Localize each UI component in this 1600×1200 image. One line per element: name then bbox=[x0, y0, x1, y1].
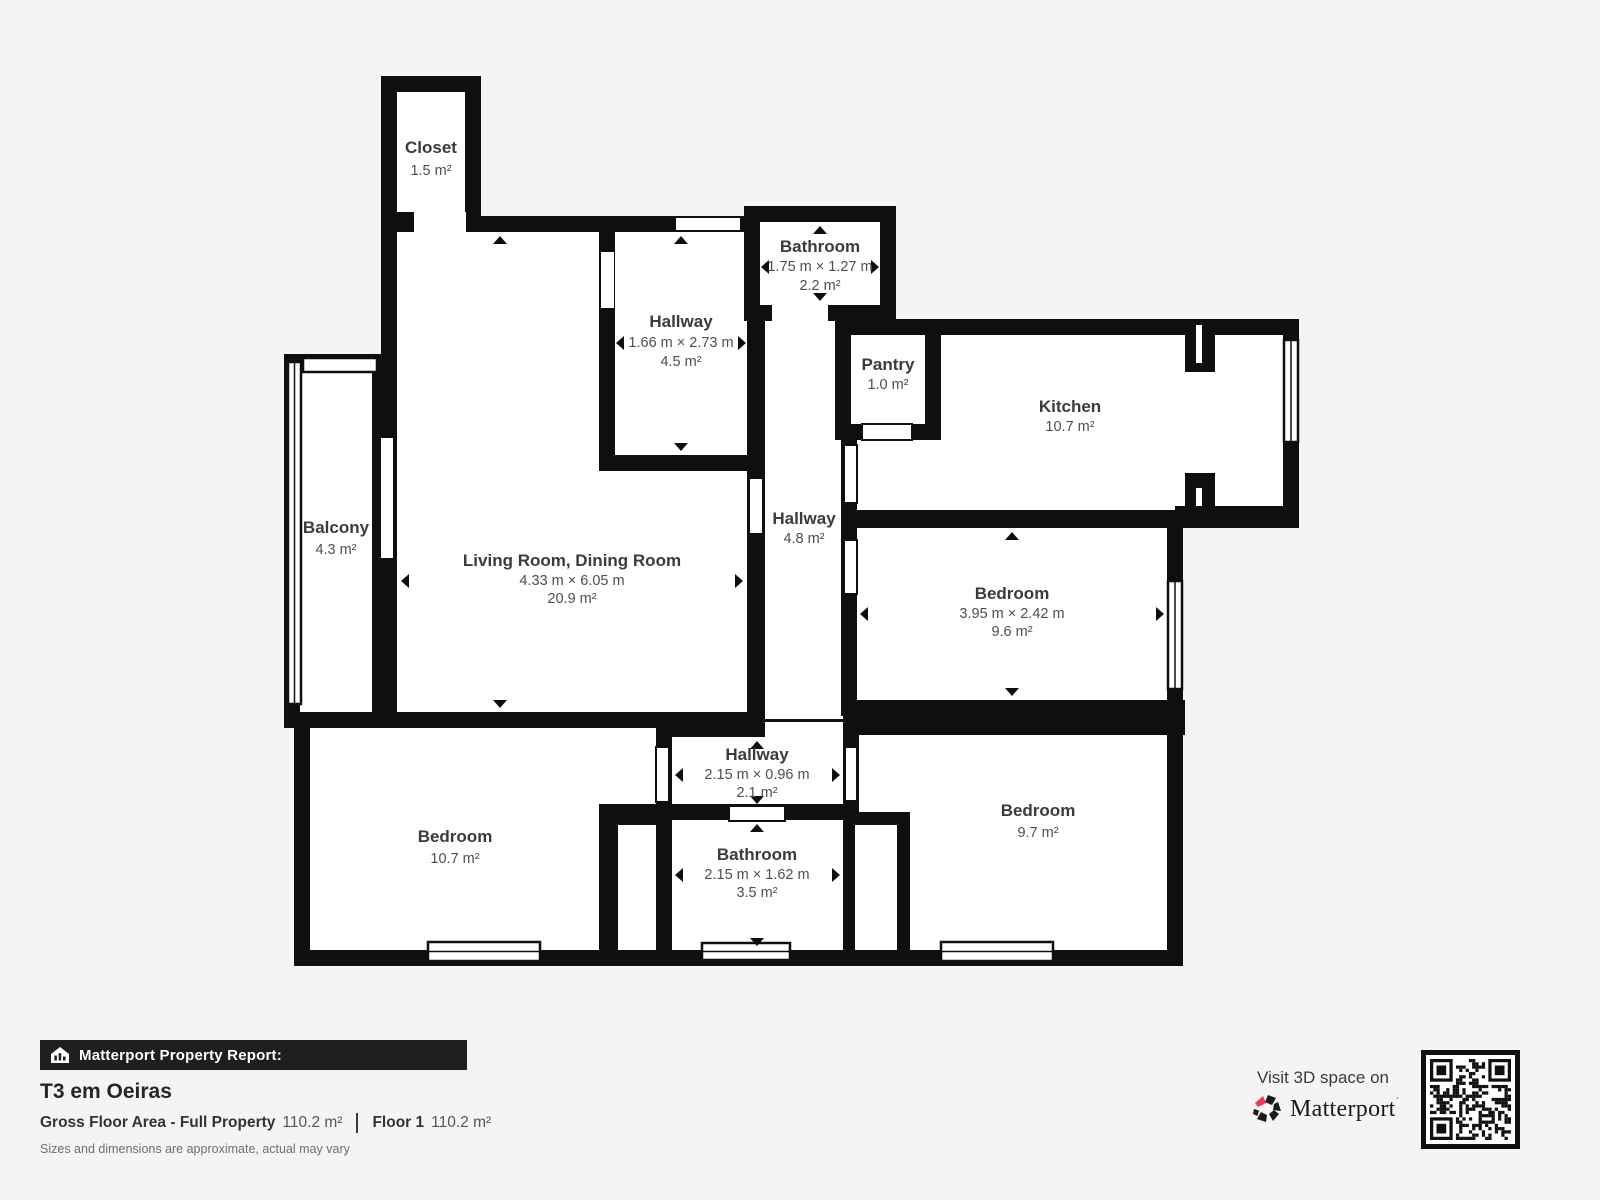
nook-right bbox=[855, 825, 897, 950]
bathroom-bottom-dims: 2.15 m × 1.62 m bbox=[704, 867, 809, 883]
visit-3d-label: Visit 3D space on bbox=[1248, 1068, 1398, 1088]
hallway-top-dims: 1.66 m × 2.73 m bbox=[628, 335, 733, 351]
kitchen-area: 10.7 m² bbox=[1045, 419, 1094, 435]
hallway-center-area: 4.8 m² bbox=[783, 531, 824, 547]
floor-label: Floor 1 bbox=[372, 1114, 424, 1132]
closet-door-opening bbox=[414, 212, 466, 232]
hallway-top-area: 4.5 m² bbox=[660, 354, 701, 370]
closet-area: 1.5 m² bbox=[410, 163, 451, 179]
matterport-logo: Matterport´ bbox=[1252, 1094, 1400, 1124]
living-hallwaytop-opening bbox=[601, 252, 614, 308]
nook-left bbox=[618, 825, 660, 950]
bedroom-bottom-right-area: 9.7 m² bbox=[1017, 825, 1058, 841]
balcony-window-left bbox=[288, 362, 301, 704]
hallway-bottom-area: 2.1 m² bbox=[736, 785, 777, 801]
living-label: Living Room, Dining Room bbox=[463, 551, 681, 570]
bedroom-bottom-right-window bbox=[941, 942, 1053, 961]
area-summary: Gross Floor Area - Full Property 110.2 m… bbox=[40, 1113, 491, 1133]
hallway-bottom-dims: 2.15 m × 0.96 m bbox=[704, 767, 809, 783]
matterport-pinwheel-icon bbox=[1252, 1094, 1282, 1124]
bedroom-left-door bbox=[656, 747, 669, 802]
bathroom-bottom-label: Bathroom bbox=[717, 845, 797, 864]
bedroom-left-window bbox=[428, 942, 540, 961]
hallway-lintel bbox=[765, 719, 843, 722]
kitchen-label: Kitchen bbox=[1039, 397, 1101, 416]
balcony-label: Balcony bbox=[303, 518, 370, 537]
bedroom-left-label: Bedroom bbox=[418, 827, 493, 846]
balcony-door bbox=[380, 437, 394, 559]
bedroom-bottom-right-door bbox=[845, 747, 857, 801]
gross-floor-area-label: Gross Floor Area - Full Property bbox=[40, 1114, 275, 1132]
bathroom-top-area: 2.2 m² bbox=[799, 278, 840, 294]
entry-door bbox=[675, 217, 741, 231]
room-balcony bbox=[292, 362, 380, 720]
pantry-door bbox=[862, 424, 912, 440]
bathroom-top-label: Bathroom bbox=[780, 237, 860, 256]
hallway-top-label: Hallway bbox=[649, 312, 713, 331]
balcony-area: 4.3 m² bbox=[315, 542, 356, 558]
kitchen-window bbox=[1284, 340, 1298, 442]
bathroom-bottom-door bbox=[729, 806, 785, 821]
hallway-center-label: Hallway bbox=[772, 509, 836, 528]
bedroom-bottom-right-label: Bedroom bbox=[1001, 801, 1076, 820]
hallway-bedroom-right-door bbox=[844, 540, 857, 594]
divider bbox=[356, 1113, 358, 1133]
bathroom-bottom-area: 3.5 m² bbox=[736, 885, 777, 901]
bedroom-right-window bbox=[1168, 581, 1182, 689]
bedroom-left-area: 10.7 m² bbox=[430, 851, 479, 867]
report-bar: Matterport Property Report: bbox=[40, 1040, 467, 1070]
bathroom-top-dims: 1.75 m × 1.27 m bbox=[767, 259, 872, 275]
closet-label: Closet bbox=[405, 138, 457, 157]
house-report-icon bbox=[51, 1047, 69, 1063]
floor-plan: Closet 1.5 m² Hallway 1.66 m × 2.73 m 4.… bbox=[0, 0, 1600, 1200]
bathroom-top-door-opening bbox=[772, 305, 828, 321]
hallway-kitchen-door bbox=[844, 445, 857, 503]
bathroom-bottom-window bbox=[702, 943, 790, 960]
qr-code bbox=[1421, 1050, 1520, 1149]
bedroom-right-dims: 3.95 m × 2.42 m bbox=[959, 606, 1064, 622]
gross-floor-area-value: 110.2 m² bbox=[282, 1114, 342, 1132]
kitchen-step-wall bbox=[1175, 506, 1299, 528]
property-title: T3 em Oeiras bbox=[40, 1080, 172, 1104]
pantry-area: 1.0 m² bbox=[867, 377, 908, 393]
hallway-hallway-opening bbox=[765, 722, 843, 738]
disclaimer-text: Sizes and dimensions are approximate, ac… bbox=[40, 1142, 350, 1156]
living-dims: 4.33 m × 6.05 m bbox=[519, 573, 624, 589]
living-hallway-door bbox=[749, 478, 763, 534]
kitchen-notch-top-slit bbox=[1196, 325, 1202, 363]
balcony-window-top bbox=[303, 358, 377, 372]
hallway-bottom-label: Hallway bbox=[725, 745, 789, 764]
bedroom-right-label: Bedroom bbox=[975, 584, 1050, 603]
floor-value: 110.2 m² bbox=[431, 1114, 491, 1132]
pantry-label: Pantry bbox=[862, 355, 915, 374]
living-area: 20.9 m² bbox=[547, 591, 596, 607]
matterport-wordmark: Matterport´ bbox=[1290, 1096, 1400, 1123]
bedroom-right-area: 9.6 m² bbox=[991, 624, 1032, 640]
report-bar-label: Matterport Property Report: bbox=[79, 1047, 282, 1064]
